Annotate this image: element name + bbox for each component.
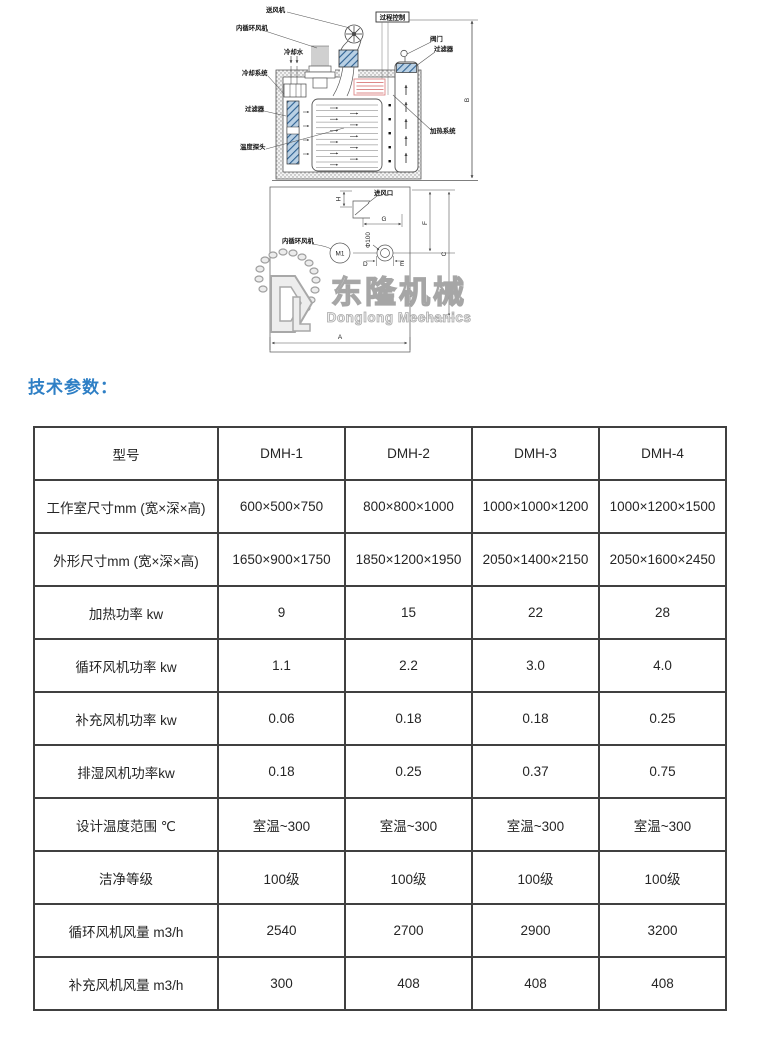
spec-cell: 22 — [472, 586, 599, 639]
temp-probe-label: 温度探头 — [240, 142, 266, 151]
table-row: 外形尺寸mm (宽×深×高) 1650×900×1750 1850×1200×1… — [34, 533, 726, 586]
cooling-system-label: 冷却系统 — [242, 68, 268, 77]
valve-label: 阀门 — [430, 34, 443, 43]
section-view: 过程控制 — [236, 5, 478, 181]
row-label: 加热功率 kw — [34, 586, 218, 639]
spec-cell: 600×500×750 — [218, 480, 345, 533]
right-filter-cap — [397, 64, 417, 73]
filter-left-label: 过滤器 — [245, 104, 265, 113]
row-label: 工作室尺寸mm (宽×深×高) — [34, 480, 218, 533]
spec-cell: 300 — [218, 957, 345, 1010]
spec-cell: 100级 — [218, 851, 345, 904]
table-row: 补充风机功率 kw 0.06 0.18 0.18 0.25 — [34, 692, 726, 745]
table-header-row: 型号 DMH-1 DMH-2 DMH-3 DMH-4 — [34, 427, 726, 480]
tray-rack — [312, 99, 382, 171]
spec-cell: 室温~300 — [218, 798, 345, 851]
spec-cell: 100级 — [472, 851, 599, 904]
table-row: 设计温度范围 ℃ 室温~300 室温~300 室温~300 室温~300 — [34, 798, 726, 851]
exhaust-fan — [341, 25, 363, 51]
spec-cell: 0.25 — [345, 745, 472, 798]
spec-cell: 2900 — [472, 904, 599, 957]
spec-cell: 0.18 — [218, 745, 345, 798]
table-row: 加热功率 kw 9 15 22 28 — [34, 586, 726, 639]
motor-m1-label: M1 — [336, 251, 345, 258]
watermark-brand-text: 东隆机械 — [331, 275, 467, 310]
process-control-box: 过程控制 — [376, 12, 478, 95]
col-header-model: 型号 — [34, 427, 218, 480]
table-row: 洁净等级 100级 100级 100级 100级 — [34, 851, 726, 904]
table-row: 补充风机风量 m3/h 300 408 408 408 — [34, 957, 726, 1010]
row-label: 设计温度范围 ℃ — [34, 798, 218, 851]
spec-cell: 408 — [599, 957, 726, 1010]
valve-symbol — [401, 50, 407, 56]
spec-cell: 0.25 — [599, 692, 726, 745]
dim-H-label: H — [336, 196, 343, 201]
spec-cell: 0.18 — [345, 692, 472, 745]
oven-schematic-svg: 过程控制 — [0, 0, 759, 362]
spec-cell: 0.06 — [218, 692, 345, 745]
dl-logo-icon — [271, 276, 312, 332]
phi-100-label: Φ100 — [365, 232, 372, 248]
dim-C-label: C — [441, 251, 448, 256]
dim-G-label: G — [382, 216, 387, 223]
spec-cell: 1000×1200×1500 — [599, 480, 726, 533]
row-label: 外形尺寸mm (宽×深×高) — [34, 533, 218, 586]
table-row: 排湿风机功率kw 0.18 0.25 0.37 0.75 — [34, 745, 726, 798]
spec-cell: 1.1 — [218, 639, 345, 692]
spec-cell: 2700 — [345, 904, 472, 957]
spec-cell: 1850×1200×1950 — [345, 533, 472, 586]
spec-cell: 28 — [599, 586, 726, 639]
sensor-dots — [389, 104, 391, 162]
heating-system-label: 加热系统 — [429, 126, 456, 135]
spec-cell: 0.75 — [599, 745, 726, 798]
spec-cell: 15 — [345, 586, 472, 639]
inner-fan-plan-label: 内循环风机 — [282, 236, 315, 245]
spec-cell: 室温~300 — [345, 798, 472, 851]
col-header-dmh3: DMH-3 — [472, 427, 599, 480]
inner-fan-label: 内循环风机 — [236, 23, 269, 32]
spec-cell: 1650×900×1750 — [218, 533, 345, 586]
table-row: 工作室尺寸mm (宽×深×高) 600×500×750 800×800×1000… — [34, 480, 726, 533]
spec-cell: 408 — [345, 957, 472, 1010]
spec-cell: 100级 — [599, 851, 726, 904]
row-label: 循环风机功率 kw — [34, 639, 218, 692]
col-header-dmh4: DMH-4 — [599, 427, 726, 480]
spec-cell: 0.18 — [472, 692, 599, 745]
dim-E-label: E — [400, 261, 404, 268]
process-control-label: 过程控制 — [380, 12, 406, 21]
row-label: 补充风机功率 kw — [34, 692, 218, 745]
table-row: 循环风机功率 kw 1.1 2.2 3.0 4.0 — [34, 639, 726, 692]
circulation-fan-motor — [305, 46, 335, 88]
spec-cell: 100级 — [345, 851, 472, 904]
filter-right-label: 过滤器 — [434, 44, 454, 53]
dim-F-label: F — [422, 221, 429, 225]
spec-cell: 3200 — [599, 904, 726, 957]
row-label: 洁净等级 — [34, 851, 218, 904]
top-filter-box — [339, 50, 358, 67]
row-label: 补充风机风量 m3/h — [34, 957, 218, 1010]
heater-coil — [354, 79, 385, 95]
spec-cell: 室温~300 — [472, 798, 599, 851]
spec-cell: 800×800×1000 — [345, 480, 472, 533]
spec-cell: 2540 — [218, 904, 345, 957]
row-label: 排湿风机功率kw — [34, 745, 218, 798]
dim-B-label: B — [464, 98, 471, 102]
fan-top-label: 送风机 — [265, 5, 286, 14]
makeup-air-duct — [395, 50, 418, 172]
table-row: 循环风机风量 m3/h 2540 2700 2900 3200 — [34, 904, 726, 957]
page-title: 技术参数： — [28, 373, 759, 398]
col-header-dmh2: DMH-2 — [345, 427, 472, 480]
spec-table: 型号 DMH-1 DMH-2 DMH-3 DMH-4 工作室尺寸mm (宽×深×… — [33, 426, 727, 1011]
spec-cell: 9 — [218, 586, 345, 639]
spec-cell: 2.2 — [345, 639, 472, 692]
air-inlet-label: 进风口 — [374, 188, 393, 197]
spec-cell: 4.0 — [599, 639, 726, 692]
spec-cell: 408 — [472, 957, 599, 1010]
spec-cell: 2050×1600×2450 — [599, 533, 726, 586]
technical-diagram: 过程控制 — [0, 0, 759, 362]
spec-cell: 1000×1000×1200 — [472, 480, 599, 533]
spec-cell: 室温~300 — [599, 798, 726, 851]
cooling-water-label: 冷却水 — [284, 47, 304, 56]
spec-cell: 0.37 — [472, 745, 599, 798]
spec-cell: 3.0 — [472, 639, 599, 692]
dim-A-label: A — [338, 334, 343, 341]
spec-cell: 2050×1400×2150 — [472, 533, 599, 586]
dim-D-label: D — [363, 261, 368, 268]
row-label: 循环风机风量 m3/h — [34, 904, 218, 957]
col-header-dmh1: DMH-1 — [218, 427, 345, 480]
watermark-sub-text: Donglong Mechanics — [327, 310, 472, 325]
